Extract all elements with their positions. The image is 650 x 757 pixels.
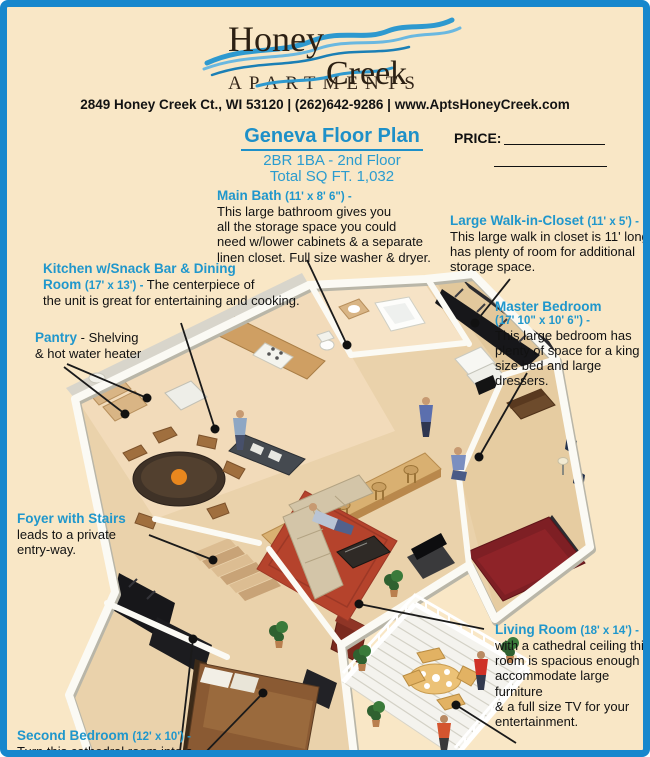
- annotation-title: Kitchen w/Snack Bar & Dining: [43, 261, 333, 277]
- annotation-dims: (12' x 10') -: [132, 731, 191, 743]
- annotation-second-bedroom: Second Bedroom (12' x 10') - Turn this c…: [17, 728, 357, 757]
- brand-word-honey: Honey: [228, 19, 324, 59]
- annotation-pantry: Pantry - Shelving & hot water heater: [35, 330, 165, 361]
- annotation-walk-in-closet: Large Walk-in-Closet (11' x 5') - This l…: [450, 213, 650, 275]
- annotation-private-balcony: Private Balcony (11' x 8') - Sliding gla…: [255, 748, 650, 757]
- annotation-title: Private Balcony: [255, 748, 356, 757]
- annotation-title: Foyer with Stairs: [17, 511, 167, 527]
- annotation-foyer: Foyer with Stairs leads to a private ent…: [17, 511, 167, 557]
- annotation-master-bedroom: Master Bedroom (17' 10" x 10' 6") - This…: [495, 299, 650, 388]
- annotation-body: This large bathroom gives you all the st…: [217, 204, 457, 264]
- price-label: PRICE:: [454, 130, 501, 146]
- annotation-dims: (18' x 14') -: [580, 625, 639, 637]
- annotation-title: Large Walk-in-Closet: [450, 213, 584, 228]
- annotation-living-room: Living Room (18' x 14') - with a cathedr…: [495, 622, 650, 729]
- flyer-page: Honey Creek APARTMENTS 2849 Honey Creek …: [0, 0, 650, 757]
- annotation-title: Main Bath: [217, 188, 282, 203]
- annotation-title: Pantry: [35, 330, 77, 345]
- plan-subtitle-2: Total SQ FT. 1,032: [7, 168, 650, 185]
- annotation-body: Sliding glass: [415, 748, 488, 757]
- plant: [367, 701, 385, 727]
- annotation-body: with a cathedral ceiling this room is sp…: [495, 638, 650, 728]
- price-blank-line-2: [494, 166, 607, 167]
- annotation-main-bath: Main Bath (11' x 8' 6") - This large bat…: [217, 188, 457, 265]
- lamp: [558, 458, 568, 465]
- annotation-body: The centerpiece of the unit is great for…: [43, 277, 300, 308]
- brand-word-creek: Creek: [326, 55, 407, 92]
- annotation-dims: (11' x 5') -: [587, 216, 639, 228]
- annotation-body: leads to a private entry-way.: [17, 527, 167, 557]
- annotation-title-2: Room: [43, 277, 81, 292]
- annotation-dims: (11' x 8') -: [360, 751, 412, 757]
- page-title: Geneva Floor Plan: [241, 125, 423, 151]
- annotation-body: This large walk in closet is 11' long ha…: [450, 229, 650, 274]
- annotation-dims: (11' x 8' 6") -: [285, 191, 352, 203]
- annotation-dims: (17' x 13') -: [85, 280, 144, 292]
- annotation-title: Master Bedroom: [495, 299, 650, 315]
- plan-title-row: Geneva Floor Plan: [7, 125, 650, 151]
- annotation-kitchen: Kitchen w/Snack Bar & Dining Room (17' x…: [43, 261, 333, 308]
- annotation-dims: (17' 10" x 10' 6") -: [495, 315, 650, 328]
- table-centerpiece: [171, 469, 187, 485]
- annotation-title: Living Room: [495, 622, 577, 637]
- annotation-body: Turn this cathedral room into a: [17, 744, 357, 757]
- price-blank-line-1: [504, 144, 605, 145]
- annotation-title: Second Bedroom: [17, 728, 129, 743]
- annotation-body: This large bedroom has plenty of space f…: [495, 328, 650, 388]
- brand-logo: Honey Creek: [202, 11, 472, 93]
